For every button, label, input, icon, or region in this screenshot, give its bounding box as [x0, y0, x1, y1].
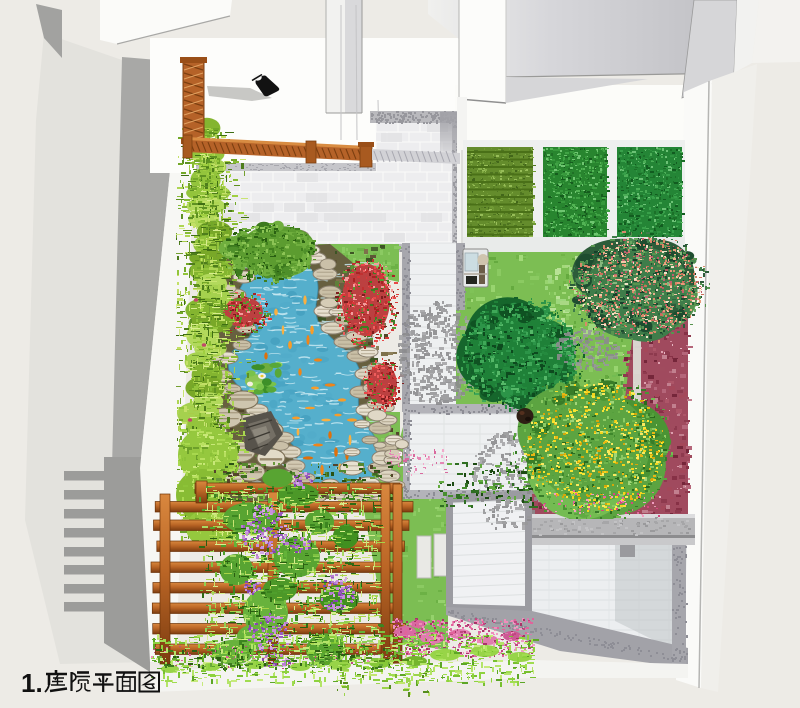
- svg-text:1.: 1.: [21, 668, 43, 698]
